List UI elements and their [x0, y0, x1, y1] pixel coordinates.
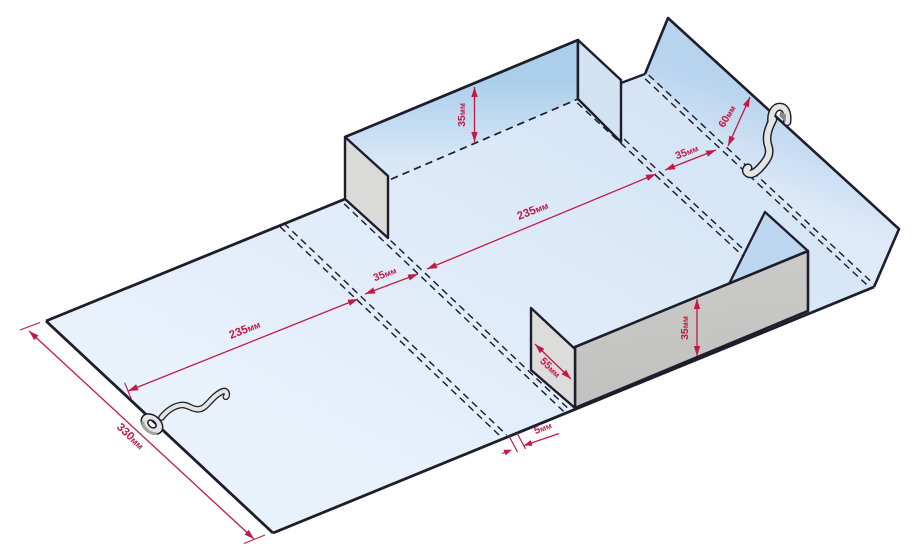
svg-text:35мм: 35мм: [679, 316, 691, 340]
svg-text:35мм: 35мм: [456, 103, 468, 127]
